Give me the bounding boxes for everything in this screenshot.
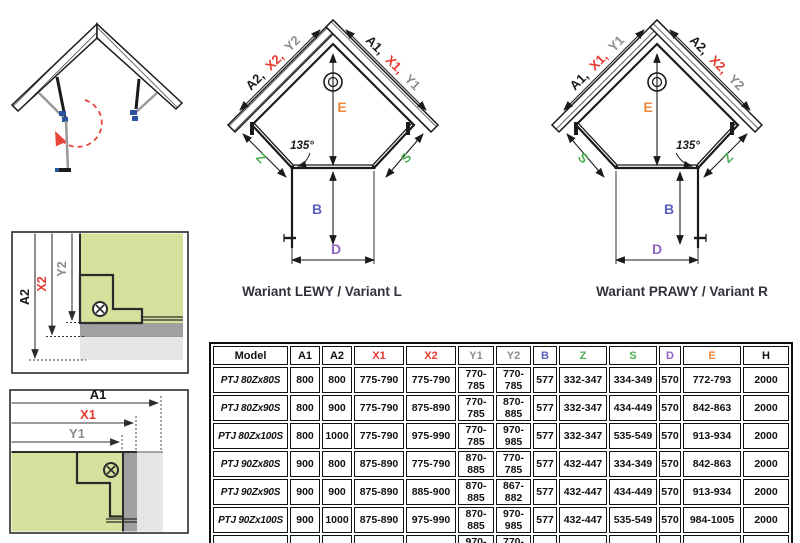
column-header-a2: A2 <box>322 346 352 365</box>
angle-arc-arrow <box>676 153 692 166</box>
value-cell: 913-934 <box>683 423 741 449</box>
value-cell: 2000 <box>743 535 789 543</box>
door-handle <box>58 168 71 172</box>
column-header-h: H <box>743 346 789 365</box>
value-cell: 770-785 <box>458 423 494 449</box>
value-cell: 1000 <box>322 507 352 533</box>
column-header-x1: X1 <box>354 346 404 365</box>
wall-label-y: Y2 <box>726 71 748 93</box>
value-cell: 532-547 <box>559 535 607 543</box>
table-row: PTJ 80Zx100S8001000775-790975-990770-785… <box>213 423 789 449</box>
wall-label-y: Y2 <box>281 33 303 55</box>
value-cell: 535-549 <box>609 423 657 449</box>
dim-label-y2: Y2 <box>55 261 69 276</box>
column-header-z: Z <box>559 346 607 365</box>
model-cell: PTJ 80Zx100S <box>213 423 288 449</box>
model-cell: PTJ 100Zx80S <box>213 535 288 543</box>
value-cell: 775-790 <box>406 535 456 543</box>
screw-icon <box>93 302 107 316</box>
value-cell: 975-990 <box>354 535 404 543</box>
column-header-y2: Y2 <box>496 346 531 365</box>
value-cell: 434-449 <box>609 479 657 505</box>
profile-band-light <box>137 452 163 532</box>
value-cell: 570 <box>659 451 681 477</box>
fixed-panels <box>39 77 157 120</box>
value-cell: 842-863 <box>683 395 741 421</box>
column-header-s: S <box>609 346 657 365</box>
value-cell: 775-790 <box>406 367 456 393</box>
wall-profile-detail-top: Y2 X2 A2 <box>8 224 212 383</box>
value-cell: 800 <box>290 367 320 393</box>
column-header-y1: Y1 <box>458 346 494 365</box>
value-cell: 434-449 <box>609 395 657 421</box>
value-cell: 2000 <box>743 507 789 533</box>
model-cell: PTJ 80Zx80S <box>213 367 288 393</box>
table-row: PTJ 100Zx80S1000800975-990775-790970-985… <box>213 535 789 543</box>
value-cell: 775-790 <box>354 423 404 449</box>
value-cell: 900 <box>322 395 352 421</box>
value-cell: 770-785 <box>496 367 531 393</box>
value-cell: 875-890 <box>406 395 456 421</box>
walls-perspective <box>12 24 182 111</box>
dim-label-x1: X1 <box>80 407 96 422</box>
variant-left-caption: Wariant LEWY / Variant L <box>210 284 434 299</box>
dim-label-a1: A1 <box>90 387 107 402</box>
value-cell: 775-790 <box>354 395 404 421</box>
profile-band-dark <box>80 323 183 337</box>
value-cell: 800 <box>322 367 352 393</box>
dim-label-d: D <box>652 241 662 257</box>
value-cell: 870-885 <box>496 395 531 421</box>
column-header-d: D <box>659 346 681 365</box>
dim-label-b: B <box>312 201 322 217</box>
page: E B D Z S 135° A2, X2, Y2 A1, X1, Y1 War… <box>0 0 800 543</box>
value-cell: 975-990 <box>406 423 456 449</box>
model-cell: PTJ 90Zx100S <box>213 507 288 533</box>
open-door <box>284 169 296 248</box>
value-cell: 870-885 <box>458 479 494 505</box>
dim-label-y1: Y1 <box>69 426 85 441</box>
value-cell: 970-985 <box>496 423 531 449</box>
open-door <box>55 121 71 172</box>
value-cell: 577 <box>533 535 557 543</box>
value-cell: 334-349 <box>609 535 657 543</box>
value-cell: 885-900 <box>406 479 456 505</box>
table-row: PTJ 90Zx90S900900875-890885-900870-88586… <box>213 479 789 505</box>
value-cell: 800 <box>290 423 320 449</box>
value-cell: 800 <box>322 451 352 477</box>
value-cell: 900 <box>290 479 320 505</box>
screw-icon <box>104 463 118 477</box>
table-row: PTJ 90Zx100S9001000875-890975-990870-885… <box>213 507 789 533</box>
value-cell: 900 <box>290 451 320 477</box>
variant-right-diagram: E B D S Z 135° A1, X1, Y1 A2, X2, Y2 War… <box>548 8 772 308</box>
value-cell: 970-985 <box>496 507 531 533</box>
table-header-row: ModelA1A2X1X2Y1Y2BZSDEH <box>213 346 789 365</box>
value-cell: 913-934 <box>683 479 741 505</box>
dim-label-d: D <box>331 241 341 257</box>
value-cell: 1000 <box>290 535 320 543</box>
value-cell: 334-349 <box>609 367 657 393</box>
value-cell: 577 <box>533 423 557 449</box>
value-cell: 577 <box>533 507 557 533</box>
value-cell: 984-1005 <box>683 507 741 533</box>
dim-label-s: S <box>575 149 592 166</box>
open-door <box>694 169 706 248</box>
model-cell: PTJ 90Zx80S <box>213 451 288 477</box>
value-cell: 770-785 <box>458 367 494 393</box>
value-cell: 432-447 <box>559 479 607 505</box>
wall-label-y: Y1 <box>605 33 627 55</box>
table-row: PTJ 90Zx80S900800875-890775-790870-88577… <box>213 451 789 477</box>
value-cell: 332-347 <box>559 395 607 421</box>
value-cell: 432-447 <box>559 451 607 477</box>
value-cell: 570 <box>659 479 681 505</box>
wall-label-y: Y1 <box>402 71 424 93</box>
column-header-e: E <box>683 346 741 365</box>
value-cell: 332-347 <box>559 367 607 393</box>
value-cell: 570 <box>659 395 681 421</box>
dim-label-z: Z <box>720 150 736 166</box>
variant-right-caption: Wariant PRAWY / Variant R <box>570 284 794 299</box>
value-cell: 867-882 <box>496 479 531 505</box>
value-cell: 900 <box>322 479 352 505</box>
angle-label: 135° <box>676 140 700 152</box>
dim-label-b: B <box>664 201 674 217</box>
column-header-x2: X2 <box>406 346 456 365</box>
value-cell: 975-990 <box>406 507 456 533</box>
column-header-model: Model <box>213 346 288 365</box>
value-cell: 875-890 <box>354 507 404 533</box>
dim-label-e: E <box>337 99 346 115</box>
value-cell: 2000 <box>743 395 789 421</box>
value-cell: 2000 <box>743 423 789 449</box>
wall-profile-detail-bottom: A1 X1 Y1 <box>8 385 212 543</box>
value-cell: 2000 <box>743 367 789 393</box>
value-cell: 570 <box>659 367 681 393</box>
value-cell: 875-890 <box>354 451 404 477</box>
table-body: PTJ 80Zx80S800800775-790775-790770-78577… <box>213 367 789 543</box>
dim-label-s: S <box>397 149 414 166</box>
value-cell: 577 <box>533 395 557 421</box>
value-cell: 577 <box>533 451 557 477</box>
value-cell: 432-447 <box>559 507 607 533</box>
value-cell: 332-347 <box>559 423 607 449</box>
value-cell: 577 <box>533 367 557 393</box>
value-cell: 775-790 <box>354 367 404 393</box>
value-cell: 570 <box>659 507 681 533</box>
door-swing-perspective-diagram <box>5 5 205 210</box>
value-cell: 1000 <box>322 423 352 449</box>
profile-band-light <box>80 337 183 361</box>
value-cell: 770-785 <box>496 535 531 543</box>
model-cell: PTJ 90Zx90S <box>213 479 288 505</box>
dim-label-a2: A2 <box>18 289 32 305</box>
value-cell: 2000 <box>743 451 789 477</box>
value-cell: 570 <box>659 535 681 543</box>
column-header-a1: A1 <box>290 346 320 365</box>
value-cell: 970-985 <box>458 535 494 543</box>
dim-label-e: E <box>643 99 652 115</box>
table-row: PTJ 80Zx90S800900775-790875-890770-78587… <box>213 395 789 421</box>
angle-label: 135° <box>290 140 314 152</box>
value-cell: 870-885 <box>458 507 494 533</box>
value-cell: 2000 <box>743 479 789 505</box>
value-cell: 842-863 <box>683 451 741 477</box>
value-cell: 875-890 <box>354 479 404 505</box>
table-row: PTJ 80Zx80S800800775-790775-790770-78577… <box>213 367 789 393</box>
model-cell: PTJ 80Zx90S <box>213 395 288 421</box>
value-cell: 535-549 <box>609 507 657 533</box>
angle-arc-arrow <box>298 153 310 166</box>
value-cell: 577 <box>533 479 557 505</box>
variant-left-diagram: E B D Z S 135° A2, X2, Y2 A1, X1, Y1 War… <box>218 8 442 308</box>
value-cell: 913-934 <box>683 535 741 543</box>
value-cell: 800 <box>322 535 352 543</box>
value-cell: 870-885 <box>458 451 494 477</box>
value-cell: 772-793 <box>683 367 741 393</box>
value-cell: 900 <box>290 507 320 533</box>
column-header-b: B <box>533 346 557 365</box>
value-cell: 570 <box>659 423 681 449</box>
value-cell: 800 <box>290 395 320 421</box>
value-cell: 775-790 <box>406 451 456 477</box>
value-cell: 770-785 <box>496 451 531 477</box>
dimensions-table: ModelA1A2X1X2Y1Y2BZSDEH PTJ 80Zx80S80080… <box>209 342 793 543</box>
value-cell: 334-349 <box>609 451 657 477</box>
value-cell: 770-785 <box>458 395 494 421</box>
dim-label-x2: X2 <box>35 276 49 291</box>
